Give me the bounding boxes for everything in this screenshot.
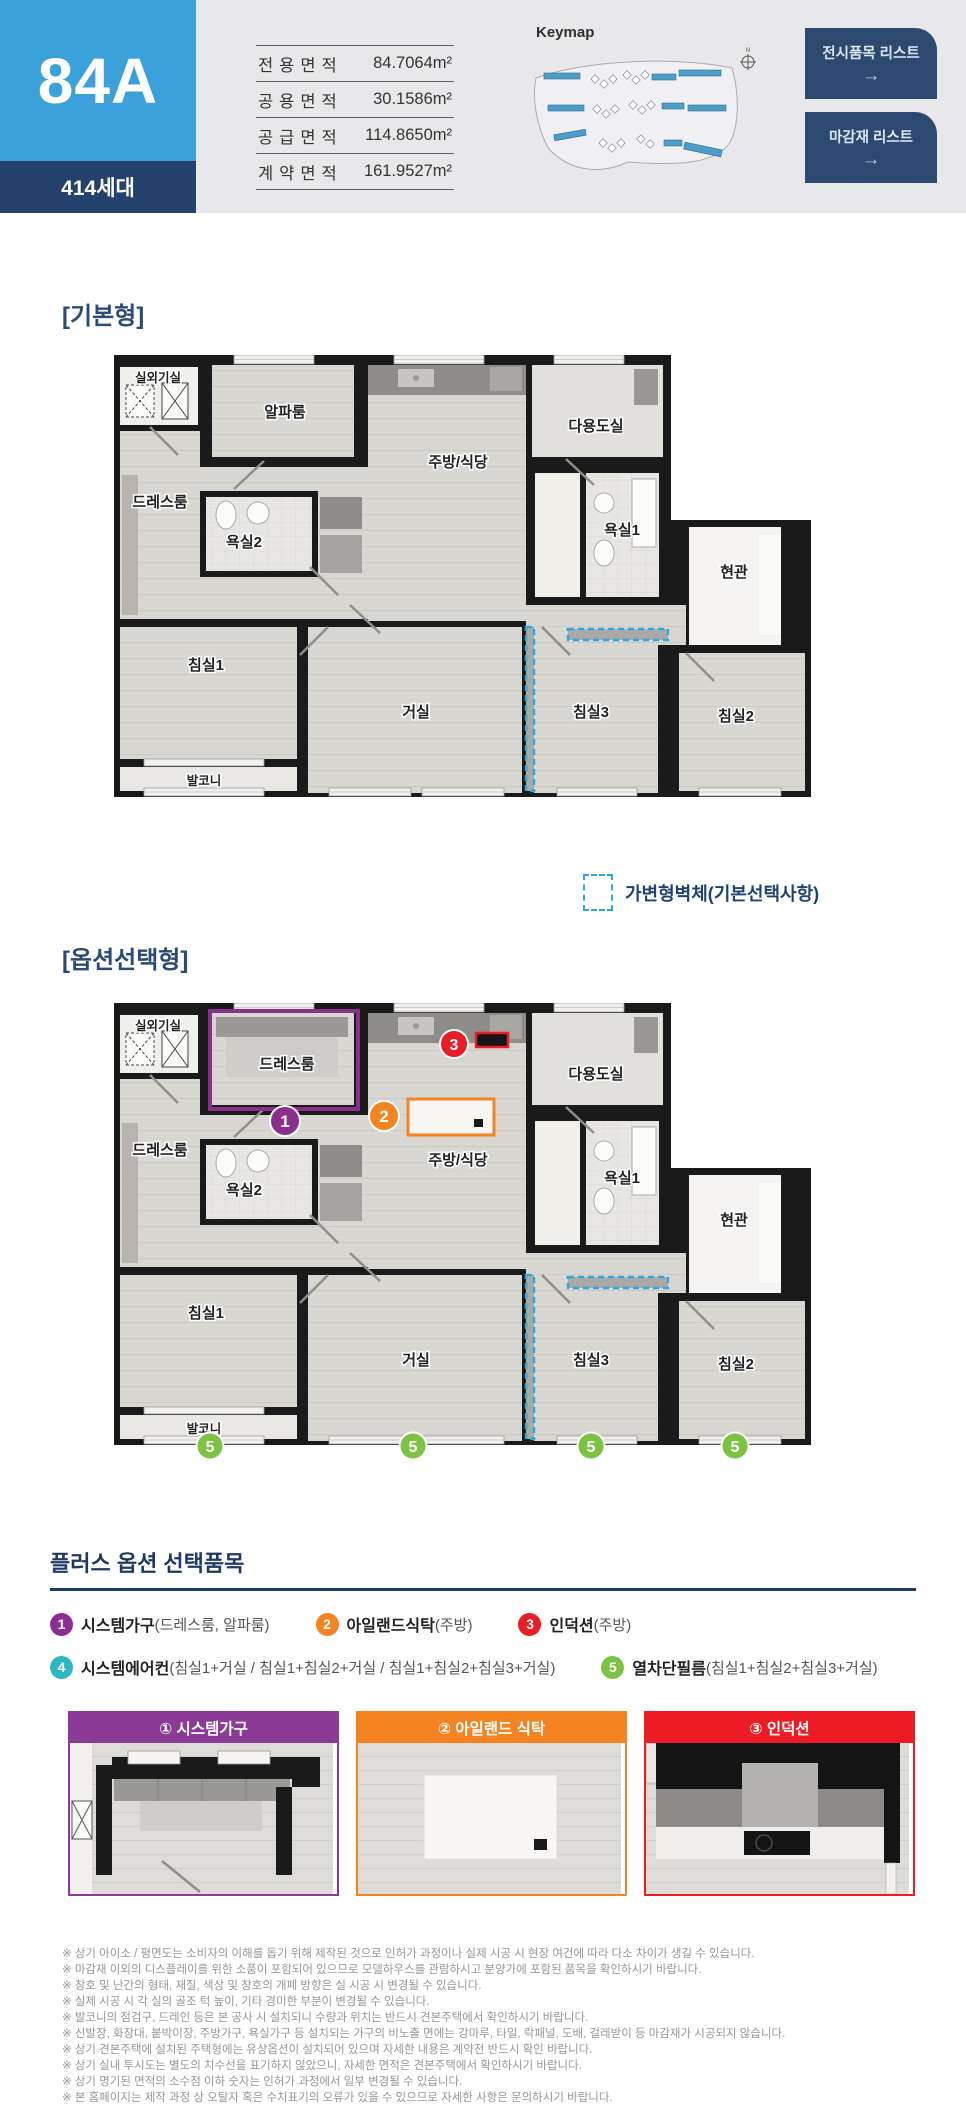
svg-text:침실3: 침실3 [573,1352,609,1369]
card-system-furniture: ① 시스템가구 [68,1711,339,1896]
variable-wall-legend: 가변형벽체(기본선택사항) [583,874,819,911]
note: ※ 창호 및 난간의 형태, 재질, 색상 및 창호의 개폐 방향은 실 시공 … [62,1978,952,1994]
header: 84A 414세대 전용면적 84.7064m² 공용면적 30.1586m² … [0,0,966,213]
svg-text:2: 2 [379,1107,388,1126]
footnotes: ※ 상기 아이소 / 평면도는 소비자의 이해를 돕기 위해 제작된 것으로 인… [62,1946,952,2106]
svg-text:드레스룸: 드레스룸 [132,1142,187,1159]
svg-text:침실2: 침실2 [718,708,754,725]
option-detail: (침실1+거실 / 침실1+침실2+거실 / 침실1+침실2+침실3+거실) [169,1657,555,1678]
card-title: ① 시스템가구 [70,1713,337,1743]
header-buttons: 전시품목 리스트 → 마감재 리스트 → [805,28,937,196]
svg-text:다용도실: 다용도실 [568,1066,623,1083]
plus-options-title: 플러스 옵션 선택품목 [50,1551,244,1576]
area-label: 전용면적 [258,52,343,76]
area-value: 30.1586m² [373,90,452,109]
option-name: 시스템에어컨 [81,1655,169,1679]
card-title: ② 아일랜드 식탁 [358,1713,625,1743]
compass-icon: N [740,48,756,70]
system-furniture-image [70,1743,333,1894]
option-induction [476,1033,508,1047]
option-3-badge: 3 [518,1613,541,1636]
keymap-site-plan: N [526,46,758,198]
svg-text:주방/식당: 주방/식당 [428,453,488,471]
option-badge-3: 3 [440,1030,468,1058]
table-row: 공급면적 114.8650m² [256,117,454,153]
area-value: 84.7064m² [373,54,452,73]
option-detail: (침실1+침실2+침실3+거실) [706,1657,878,1678]
svg-text:욕실2: 욕실2 [226,534,262,551]
option-detail: (주방) [435,1614,473,1635]
svg-text:현관: 현관 [720,1212,748,1229]
svg-text:알파룸: 알파룸 [264,404,306,421]
svg-text:3: 3 [450,1037,459,1054]
plus-options-legend-row2: 4 시스템에어컨 (침실1+거실 / 침실1+침실2+거실 / 침실1+침실2+… [50,1655,924,1679]
area-label: 공급면적 [258,124,343,148]
option-name: 아일랜드식탁 [347,1612,435,1636]
plus-options-legend-row1: 1 시스템가구 (드레스룸, 알파룸) 2 아일랜드식탁 (주방) 3 인덕션 … [50,1612,677,1636]
svg-text:다용도실: 다용도실 [568,418,623,435]
svg-text:거실: 거실 [402,704,430,721]
area-table: 전용면적 84.7064m² 공용면적 30.1586m² 공급면적 114.8… [256,45,454,190]
option-badge-2: 2 [369,1101,399,1131]
svg-text:침실2: 침실2 [718,1356,754,1373]
button-label: 전시품목 리스트 [822,42,919,63]
svg-text:주방/식당: 주방/식당 [428,1151,488,1169]
svg-text:침실1: 침실1 [188,657,224,674]
arrow-right-icon: → [862,66,881,85]
option-preview-cards: ① 시스템가구 ② 아일랜드 식탁 [68,1711,915,1896]
svg-text:5: 5 [587,1439,596,1456]
option-4-badge: 4 [50,1656,73,1679]
svg-text:실외기실: 실외기실 [135,370,181,385]
option-detail: (주방) [594,1614,632,1635]
button-label: 마감재 리스트 [829,126,913,147]
svg-text:침실3: 침실3 [573,704,609,721]
unit-badge: 84A 414세대 [0,0,196,213]
note: ※ 상기 견본주택에 설치된 주택형에는 유상옵션이 설치되어 있으며 자세한 … [62,2042,952,2058]
note: ※ 신발장, 화장대, 붙박이장, 주방가구, 욕실가구 등 설치되는 가구의 … [62,2026,952,2042]
option-item-3: 3 인덕션 (주방) [518,1612,631,1636]
variable-wall-legend-label: 가변형벽체(기본선택사항) [625,880,819,906]
area-value: 161.9527m² [364,162,452,181]
option-2-badge: 2 [316,1613,339,1636]
svg-text:거실: 거실 [402,1352,430,1369]
note: ※ 발코니의 점검구, 드레인 등은 본 공사 시 설치되니 수량과 위치는 반… [62,2010,952,2026]
card-title: ③ 인덕션 [646,1713,913,1743]
note: ※ 마감재 이외의 디스플레이를 위한 소품이 포함되어 있으므로 모델하우스를… [62,1962,952,1978]
svg-text:드레스룸: 드레스룸 [259,1056,314,1073]
option-badge-5-living: 5 [400,1433,427,1460]
floor-plan-basic: 실외기실 알파룸 주방/식당 다용도실 드레스룸 욕실2 욕실1 현관 침실1 … [114,355,814,797]
svg-text:침실1: 침실1 [188,1305,224,1322]
svg-text:5: 5 [206,1439,215,1456]
option-5-badge: 5 [601,1656,624,1679]
plus-options-section: 플러스 옵션 선택품목 [50,1546,916,1591]
option-name: 열차단필름 [632,1655,706,1679]
area-label: 계약면적 [258,160,343,184]
svg-text:욕실1: 욕실1 [604,522,640,539]
note: ※ 본 홈페이지는 제작 과정 상 오탈자 혹은 수치표기의 오류가 있을 수 … [62,2090,952,2106]
option-badge-1: 1 [270,1106,300,1136]
keymap-title: Keymap [536,24,594,41]
option-detail: (드레스룸, 알파룸) [155,1614,270,1635]
section-label-basic: [기본형] [62,296,144,331]
finishing-materials-list-button[interactable]: 마감재 리스트 → [805,112,937,183]
exhibit-items-list-button[interactable]: 전시품목 리스트 → [805,28,937,99]
floor-plan-option: 실외기실 드레스룸 주방/식당 다용도실 드레스룸 욕실2 욕실1 현관 침실1… [114,1003,814,1465]
note: ※ 상기 아이소 / 평면도는 소비자의 이해를 돕기 위해 제작된 것으로 인… [62,1946,952,1962]
unit-type-title: 84A [0,0,196,161]
note: ※ 상기 명기된 면적의 소수점 이하 숫자는 인허가 과정에서 일부 변경될 … [62,2074,952,2090]
table-row: 계약면적 161.9527m² [256,153,454,190]
svg-text:욕실2: 욕실2 [226,1182,262,1199]
arrow-right-icon: → [862,150,881,169]
option-badge-5-bed3: 5 [578,1433,605,1460]
area-label: 공용면적 [258,88,343,112]
option-item-4: 4 시스템에어컨 (침실1+거실 / 침실1+침실2+거실 / 침실1+침실2+… [50,1655,555,1679]
option-item-5: 5 열차단필름 (침실1+침실2+침실3+거실) [601,1655,877,1679]
option-badge-5-balcony: 5 [197,1433,224,1460]
note: ※ 실제 시공 시 각 실의 골조 턱 높이, 기타 경미한 부분이 변경될 수… [62,1994,952,2010]
area-value: 114.8650m² [365,126,452,145]
svg-text:N: N [746,48,750,54]
svg-text:1: 1 [280,1112,289,1131]
page: 84A 414세대 전용면적 84.7064m² 공용면적 30.1586m² … [0,0,966,2108]
table-row: 공용면적 30.1586m² [256,81,454,117]
svg-text:드레스룸: 드레스룸 [132,494,187,511]
option-badge-5-bed2: 5 [722,1433,749,1460]
induction-image [646,1743,909,1894]
section-label-option: [옵션선택형] [62,940,188,975]
svg-text:욕실1: 욕실1 [604,1170,640,1187]
note: ※ 상기 실내 투시도는 별도의 치수선을 표기하지 않았으니, 자세한 면적은… [62,2058,952,2074]
card-island-table: ② 아일랜드 식탁 [356,1711,627,1896]
svg-text:5: 5 [731,1439,740,1456]
card-induction: ③ 인덕션 [644,1711,915,1896]
svg-text:실외기실: 실외기실 [135,1018,181,1033]
island-table-image [358,1743,621,1894]
svg-text:현관: 현관 [720,564,748,581]
option-item-2: 2 아일랜드식탁 (주방) [316,1612,473,1636]
option-1-badge: 1 [50,1613,73,1636]
option-item-1: 1 시스템가구 (드레스룸, 알파룸) [50,1612,270,1636]
unit-household-count: 414세대 [0,161,196,213]
table-row: 전용면적 84.7064m² [256,45,454,81]
variable-wall-dashed-icon [583,874,613,911]
option-name: 인덕션 [549,1612,593,1636]
svg-text:발코니: 발코니 [187,773,222,788]
option-island-table [408,1099,494,1135]
svg-text:5: 5 [409,1439,418,1456]
option-name: 시스템가구 [81,1612,155,1636]
